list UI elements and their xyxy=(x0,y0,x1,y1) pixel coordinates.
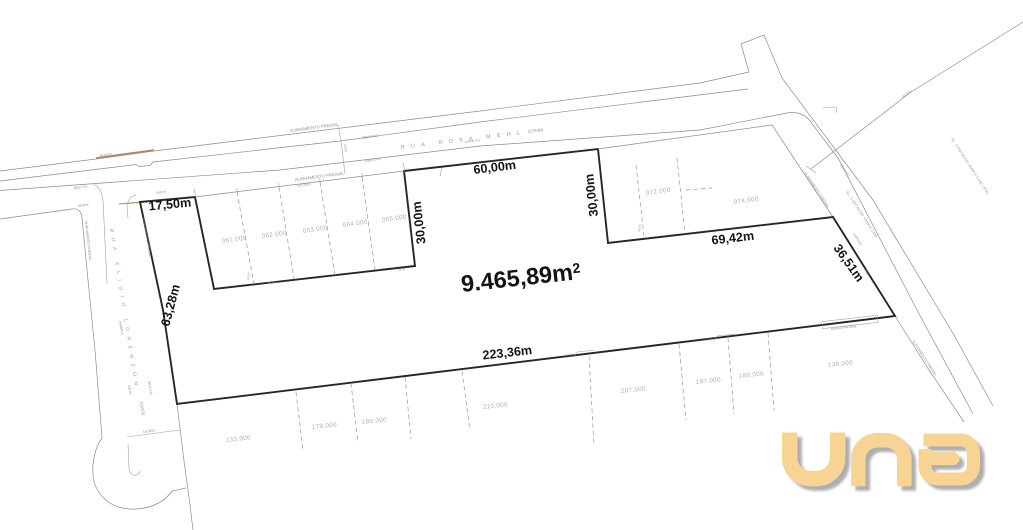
svg-text:9,06: 9,06 xyxy=(706,337,713,342)
svg-text:9,06: 9,06 xyxy=(566,352,573,357)
